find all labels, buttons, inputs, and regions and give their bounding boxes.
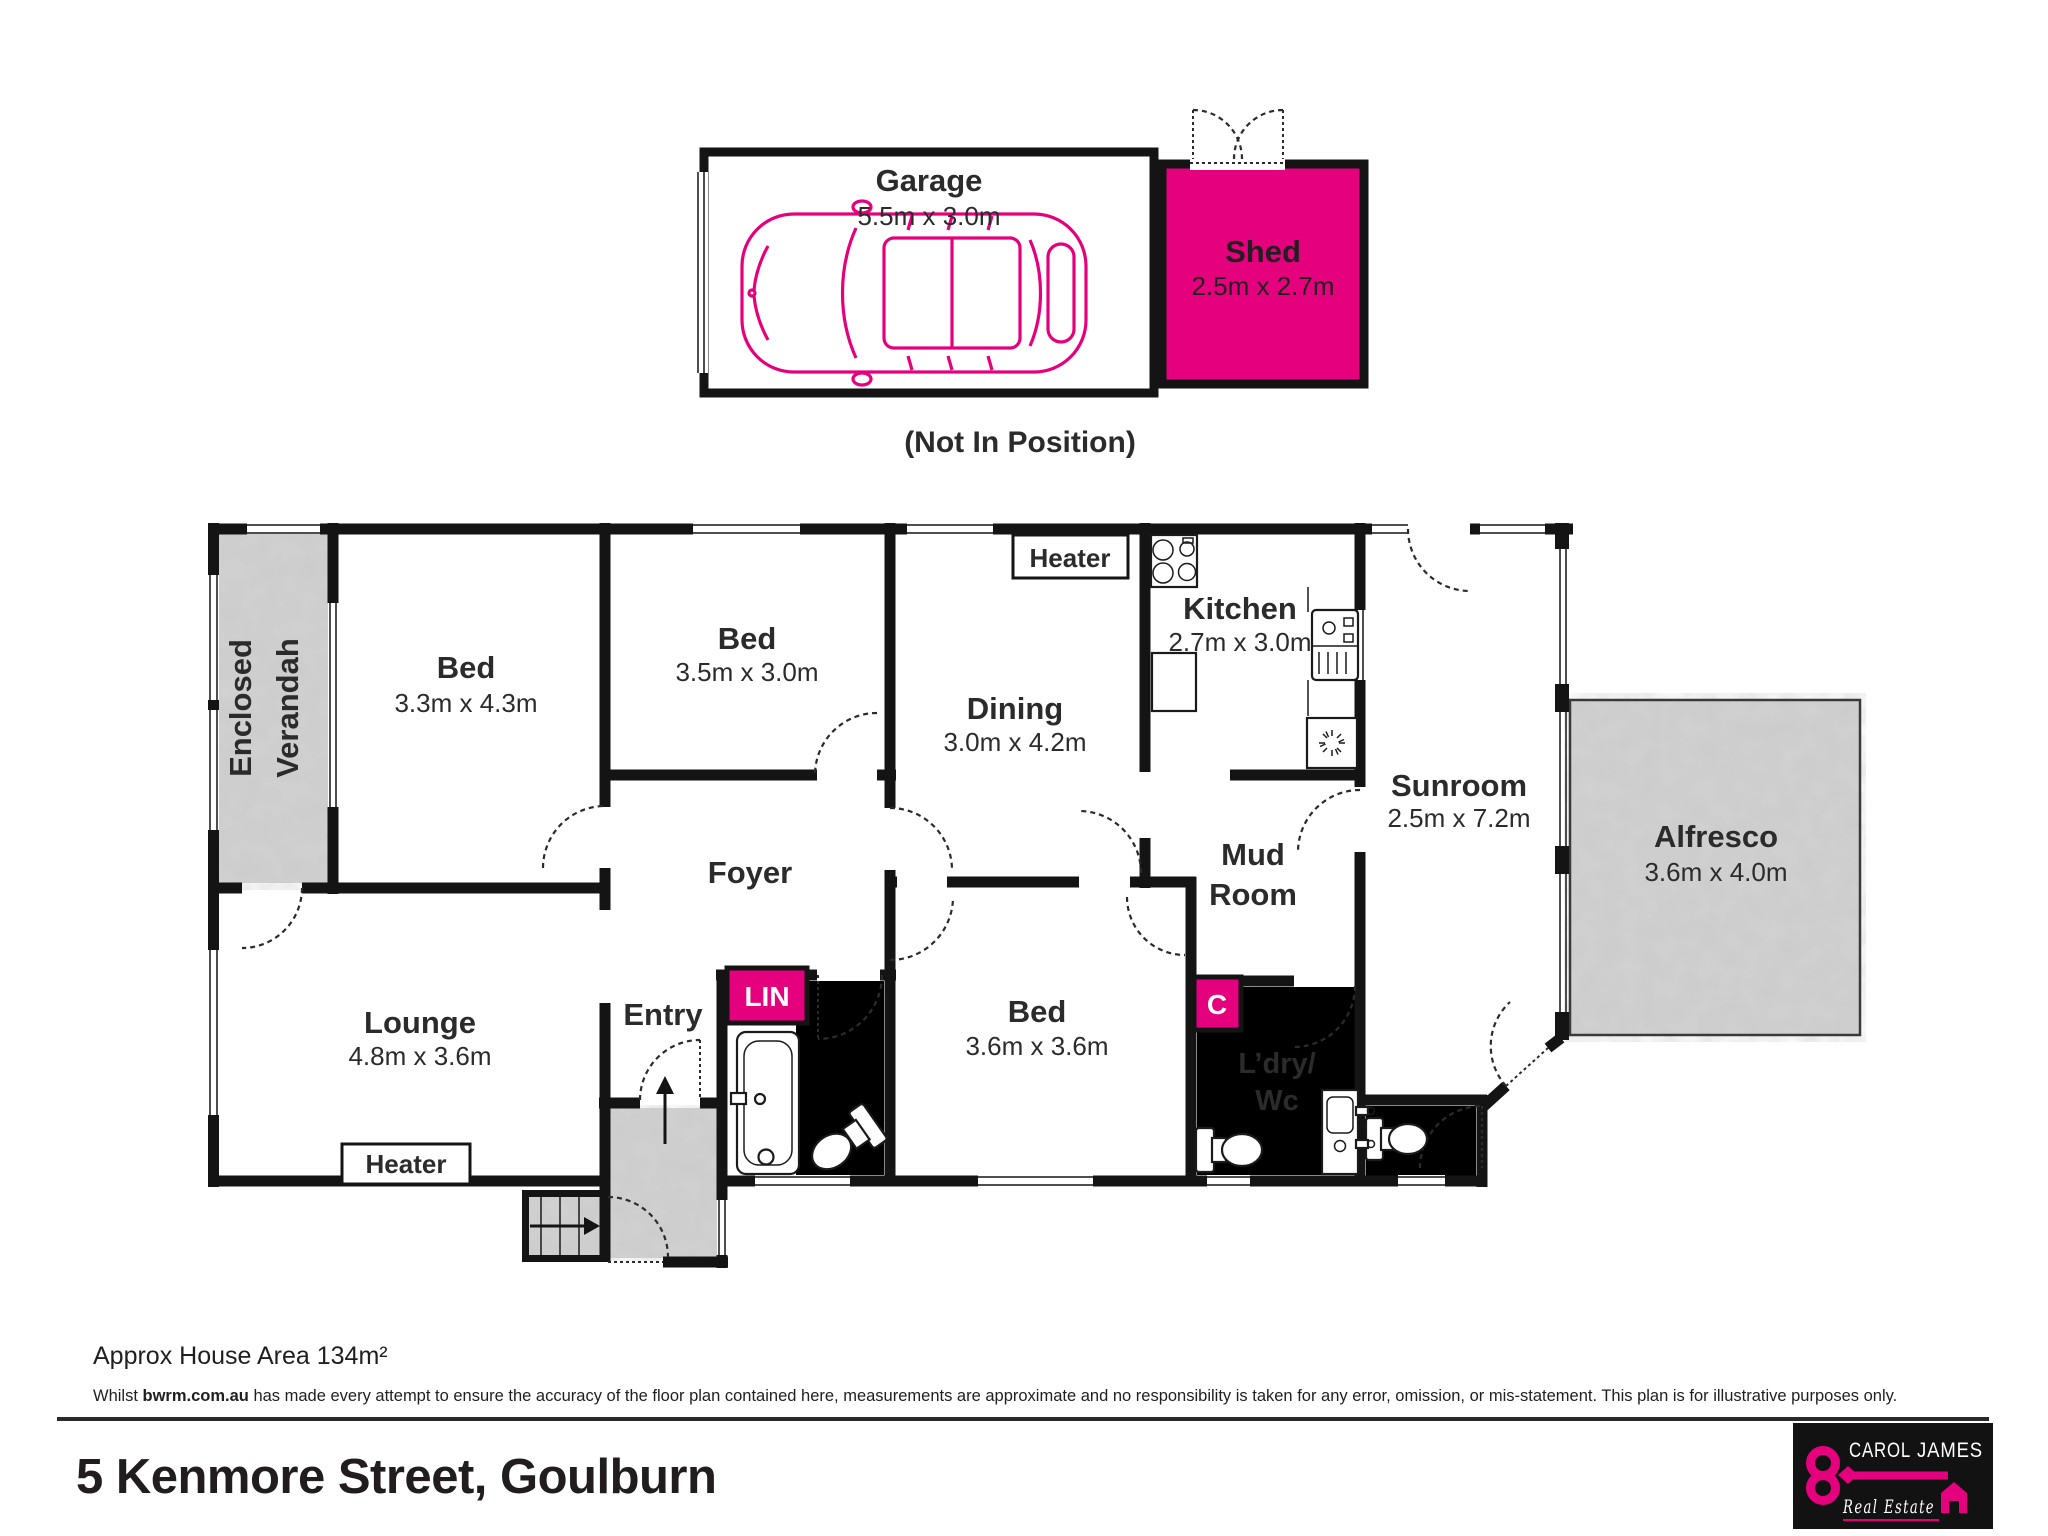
window [1372,523,1408,534]
garage-label: Garage [876,163,983,198]
logo-tagline: Real Estate [1842,1496,1935,1518]
kitchen-bench [1152,653,1196,711]
divider-line [57,1417,1989,1421]
door-arc [815,713,877,775]
lounge-dims: 4.8m x 3.6m [348,1041,491,1071]
disclaimer-text: Whilst bwrm.com.au has made every attemp… [93,1387,1897,1406]
dining-label: Dining [967,691,1063,726]
foyer-label: Foyer [708,855,792,890]
door-arc [1491,1002,1510,1086]
window [247,523,320,534]
logo-brand-second: JAMES [1917,1439,1983,1462]
sunroom-dims: 2.5m x 7.2m [1387,803,1530,833]
shed-double-doors [1190,110,1285,163]
diagonal-walls [1484,1038,1561,1106]
door-arc [1127,897,1185,955]
window [1398,1175,1445,1186]
heater-label-bottom: Heater [366,1149,447,1179]
room-labels: Enclosed Verandah Bed 3.3m x 4.3m Bed 3.… [223,543,1788,1179]
mudroom-label-line2: Room [1209,877,1297,912]
door-leaf [1506,1048,1548,1086]
door-arc [890,897,953,960]
shed-block: Shed 2.5m x 2.7m [1162,110,1364,384]
alfresco-label: Alfresco [1654,819,1778,854]
kitchen-label: Kitchen [1183,591,1297,626]
bed3-label: Bed [1008,994,1067,1029]
address-title: 5 Kenmore Street, Goulburn [76,1449,716,1505]
bed1-label: Bed [437,650,496,685]
sunroom-label: Sunroom [1391,768,1527,803]
laundry-label-line2: Wc [1255,1085,1299,1117]
house-area-note: Approx House Area 134m² [93,1342,388,1371]
window [208,950,219,1115]
door-arc [1408,529,1470,591]
garage-dims: 5.5m x 3.0m [857,201,1000,231]
dining-dims: 3.0m x 4.2m [943,727,1086,757]
linen-label: LIN [744,981,789,1012]
shed-label: Shed [1225,234,1301,269]
heater-label-top: Heater [1030,543,1111,573]
window [1207,1175,1250,1186]
window [1480,523,1545,534]
floorplan-drawing: Garage 5.5m x 3.0m Shed 2.5m x 2.7m (Not… [0,0,2048,1536]
kitchen-sink-icon [1312,610,1358,680]
verandah-label-line1: Enclosed [223,639,258,777]
bed2-label: Bed [718,621,777,656]
stove-icon [1151,535,1197,587]
bed3-dims: 3.6m x 3.6m [965,1031,1108,1061]
window [328,603,339,807]
door-arc [543,806,605,868]
shed-dims: 2.5m x 2.7m [1191,271,1334,301]
agency-logo-graphic: CAROL JAMES Real Estate [1793,1423,1993,1529]
window [208,575,219,700]
not-in-position-note: (Not In Position) [904,426,1136,459]
window [907,523,993,534]
door-arc [242,888,302,948]
window [208,710,219,830]
disclaimer-prefix: Whilst [93,1387,143,1405]
kitchen-dims: 2.7m x 3.0m [1168,627,1311,657]
verandah-label-line2: Verandah [270,638,305,778]
alfresco-dims: 3.6m x 4.0m [1644,857,1787,887]
entry-label: Entry [623,997,703,1032]
bathtub-icon [731,1032,799,1174]
mudroom-label-line1: Mud [1221,837,1285,872]
bed2-dims: 3.5m x 3.0m [675,657,818,687]
laundry-label-line1: L’dry/ [1238,1048,1315,1080]
garage-block: Garage 5.5m x 3.0m [694,152,1154,393]
bed1-dims: 3.3m x 4.3m [394,688,537,718]
window [755,1175,850,1186]
door-arc [890,808,952,870]
floorplan-page: Garage 5.5m x 3.0m Shed 2.5m x 2.7m (Not… [0,0,2048,1536]
disclaimer-source: bwrm.com.au [143,1387,249,1405]
sunroom-glass-wall [1555,523,1569,1040]
window [978,1175,1093,1186]
window [717,1200,728,1255]
door-arc [1079,811,1141,873]
window [693,523,800,534]
agency-logo: CAROL JAMES Real Estate [1793,1423,1993,1529]
logo-underline [1843,1519,1939,1521]
cupboard-label: C [1207,989,1227,1020]
lounge-label: Lounge [364,1005,476,1040]
logo-brand-first: CAROL [1849,1439,1911,1462]
hot-water-unit-icon [1307,718,1357,768]
disclaimer-rest: has made every attempt to ensure the acc… [249,1387,1897,1405]
door-arc [1298,790,1360,852]
garage-door-window [694,172,708,373]
